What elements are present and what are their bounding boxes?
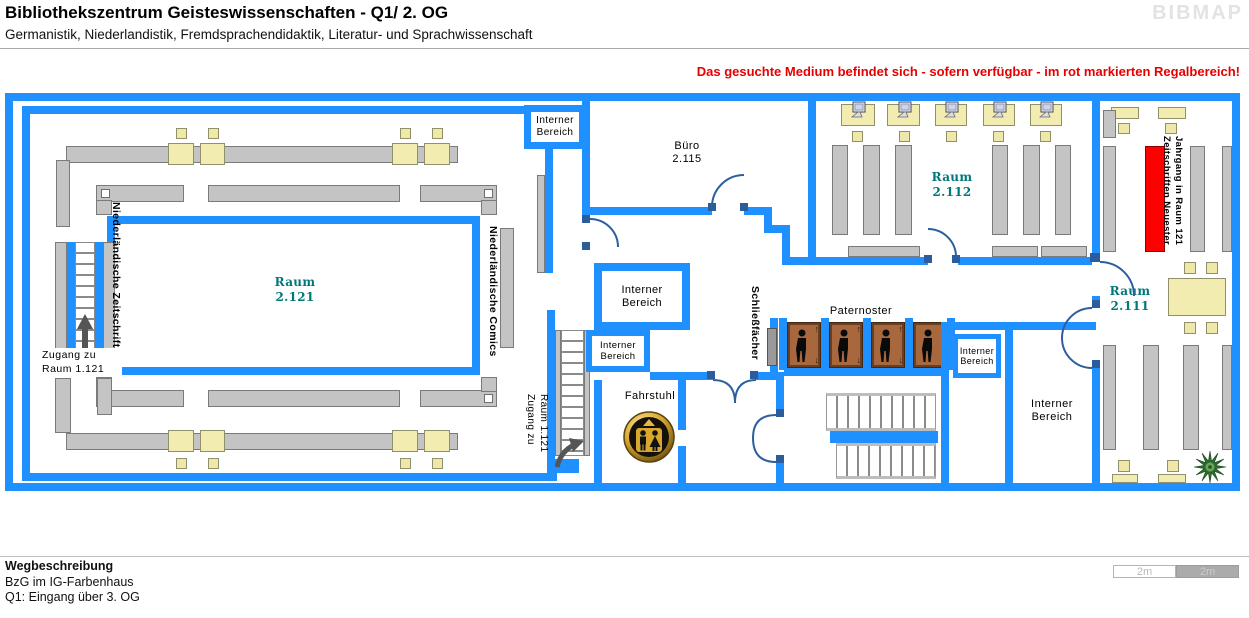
door-arc	[753, 415, 776, 438]
door-arcs-overlay	[0, 0, 1249, 618]
door-hinge	[750, 371, 758, 379]
zugang-line2: Raum 1.121	[42, 363, 104, 375]
door-arc	[1062, 338, 1092, 368]
scalebar-segment-2: 2m	[1176, 565, 1239, 578]
door-arc	[1100, 262, 1134, 296]
door-hinge	[776, 409, 784, 417]
door-hinge	[924, 255, 932, 263]
door-arc	[735, 380, 756, 403]
door-hinge	[1090, 253, 1100, 262]
door-hinge	[708, 203, 716, 211]
door-hinge	[740, 203, 748, 211]
footer-divider	[0, 556, 1249, 557]
door-arc	[753, 438, 776, 462]
door-arc	[928, 229, 956, 257]
door-hinge	[707, 371, 715, 379]
decorative-shape	[590, 175, 1134, 462]
door-hinge	[1092, 300, 1100, 308]
decorative-shape	[582, 203, 1100, 463]
zugang-line1: Zugang zu	[42, 349, 96, 361]
footer-line1: BzG im IG-Farbenhaus	[5, 575, 134, 589]
door-hinge	[776, 455, 784, 463]
footer-line2: Q1: Eingang über 3. OG	[5, 590, 140, 604]
door-arc	[712, 175, 744, 207]
door-hinge	[952, 255, 960, 263]
door-arc	[1062, 308, 1092, 338]
footer-heading: Wegbeschreibung	[5, 559, 113, 573]
door-hinge	[582, 242, 590, 250]
door-arc	[713, 380, 735, 403]
bibmap-floorplan-page: Bibliothekszentrum Geisteswissenschaften…	[0, 0, 1249, 618]
zugang-label-left: Zugang zu Raum 1.121	[42, 348, 122, 376]
scalebar-segment-1: 2m	[1113, 565, 1176, 578]
door-arc	[590, 219, 618, 247]
floorplan: Raum 2.121	[0, 0, 1249, 618]
door-hinge	[1092, 360, 1100, 368]
door-hinge	[582, 215, 590, 223]
